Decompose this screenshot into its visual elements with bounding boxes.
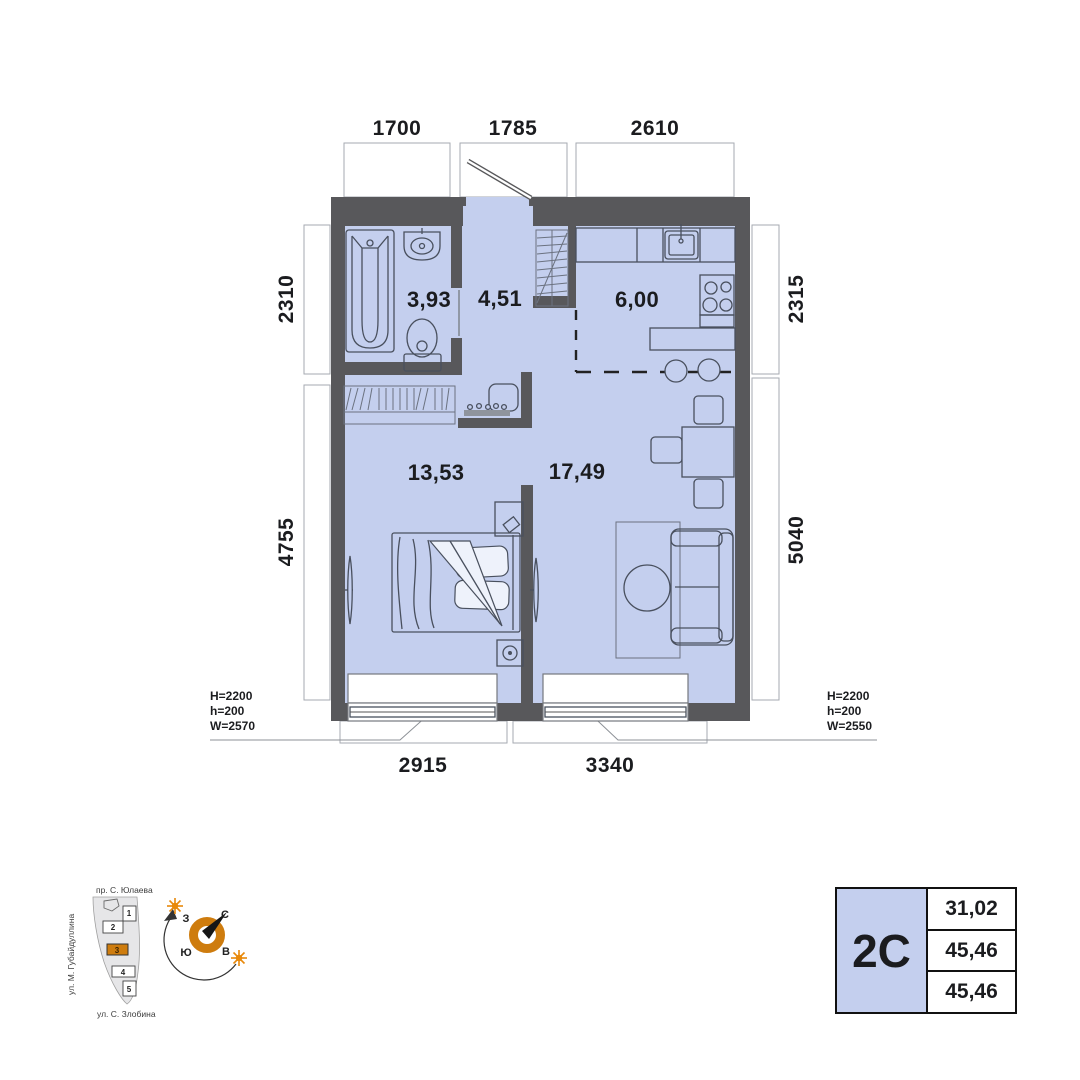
shoe-shelf (464, 410, 510, 416)
area-bedroom: 13,53 (408, 460, 465, 486)
building-4-label: 4 (121, 968, 126, 977)
note-H: H=2200 (210, 689, 255, 704)
dim-top-2: 1785 (489, 117, 538, 141)
dim-left-2: 4755 (275, 518, 299, 567)
sun-icon (167, 898, 183, 914)
building-2-label: 2 (111, 923, 116, 932)
unit-area-value: 45,46 (928, 972, 1015, 1012)
building-1-label: 1 (127, 909, 132, 918)
compass-west: З (183, 913, 190, 925)
area-kitchen: 6,00 (615, 287, 659, 313)
dim-bottom-2: 3340 (586, 754, 635, 778)
window-sill (543, 674, 688, 703)
unit-info-table: 2С 31,02 45,46 45,46 (835, 887, 1017, 1014)
compass-south: Ю (180, 947, 191, 959)
note-h: h=200 (210, 704, 255, 719)
window-note-right: H=2200 h=200 W=2550 (827, 689, 872, 734)
street-left-label: ул. М. Губайдуллина (66, 914, 76, 995)
building-5-label: 5 (127, 985, 132, 994)
building-3-label: 3 (115, 946, 120, 955)
floorplan-page: 1700 1785 2610 2310 4755 2315 5040 2915 … (0, 0, 1080, 1080)
street-top-label: пр. С. Юлаева (96, 885, 153, 895)
unit-values: 31,02 45,46 45,46 (928, 889, 1015, 1012)
note-h: h=200 (827, 704, 872, 719)
window-sill (348, 674, 497, 703)
compass-east: В (222, 946, 230, 958)
unit-type-cell: 2С (837, 889, 928, 1012)
dim-top-1: 1700 (373, 117, 422, 141)
note-W: W=2550 (827, 719, 872, 734)
dining-table (682, 427, 734, 477)
dim-right-2: 5040 (785, 516, 809, 565)
compass: З С Ю В (164, 898, 247, 980)
window-note-left: H=2200 h=200 W=2570 (210, 689, 255, 734)
coffee-table (624, 565, 670, 611)
dim-bottom-1: 2915 (399, 754, 448, 778)
area-bathroom: 3,93 (407, 287, 451, 313)
dim-top-3: 2610 (631, 117, 680, 141)
unit-area-value: 45,46 (928, 931, 1015, 973)
note-H: H=2200 (827, 689, 872, 704)
sun-icon (231, 950, 247, 966)
area-living: 17,49 (549, 459, 606, 485)
area-hallway: 4,51 (478, 286, 522, 312)
dim-left-1: 2310 (275, 275, 299, 324)
unit-area-value: 31,02 (928, 889, 1015, 931)
street-bottom-label: ул. С. Злобина (97, 1009, 156, 1019)
compass-north: С (221, 909, 229, 921)
dim-right-1: 2315 (785, 275, 809, 324)
bar-stool (698, 359, 720, 381)
bar-stool (665, 360, 687, 382)
site-plan: 1 2 3 4 5 пр. С. Юлаева ул. С. Злобина у… (55, 860, 285, 1035)
note-W: W=2570 (210, 719, 255, 734)
